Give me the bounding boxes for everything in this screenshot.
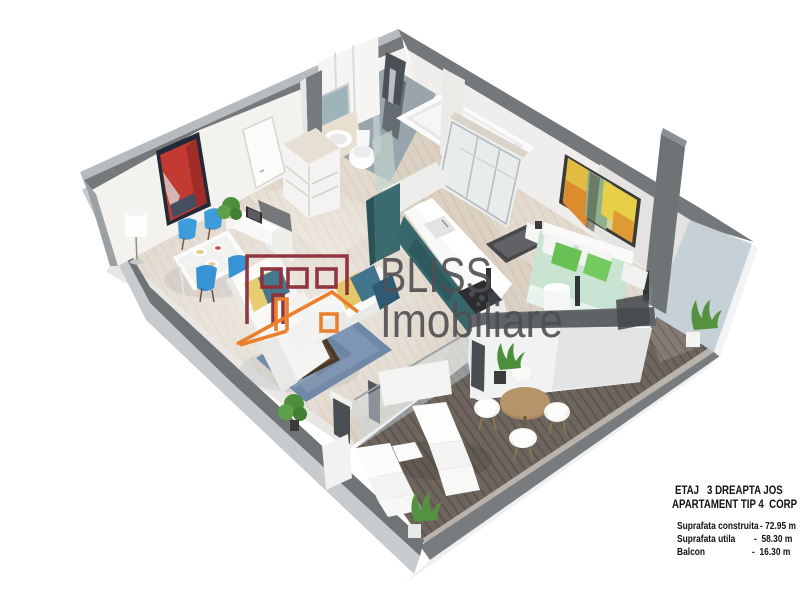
svg-text:Imobiliare: Imobiliare bbox=[380, 295, 563, 348]
